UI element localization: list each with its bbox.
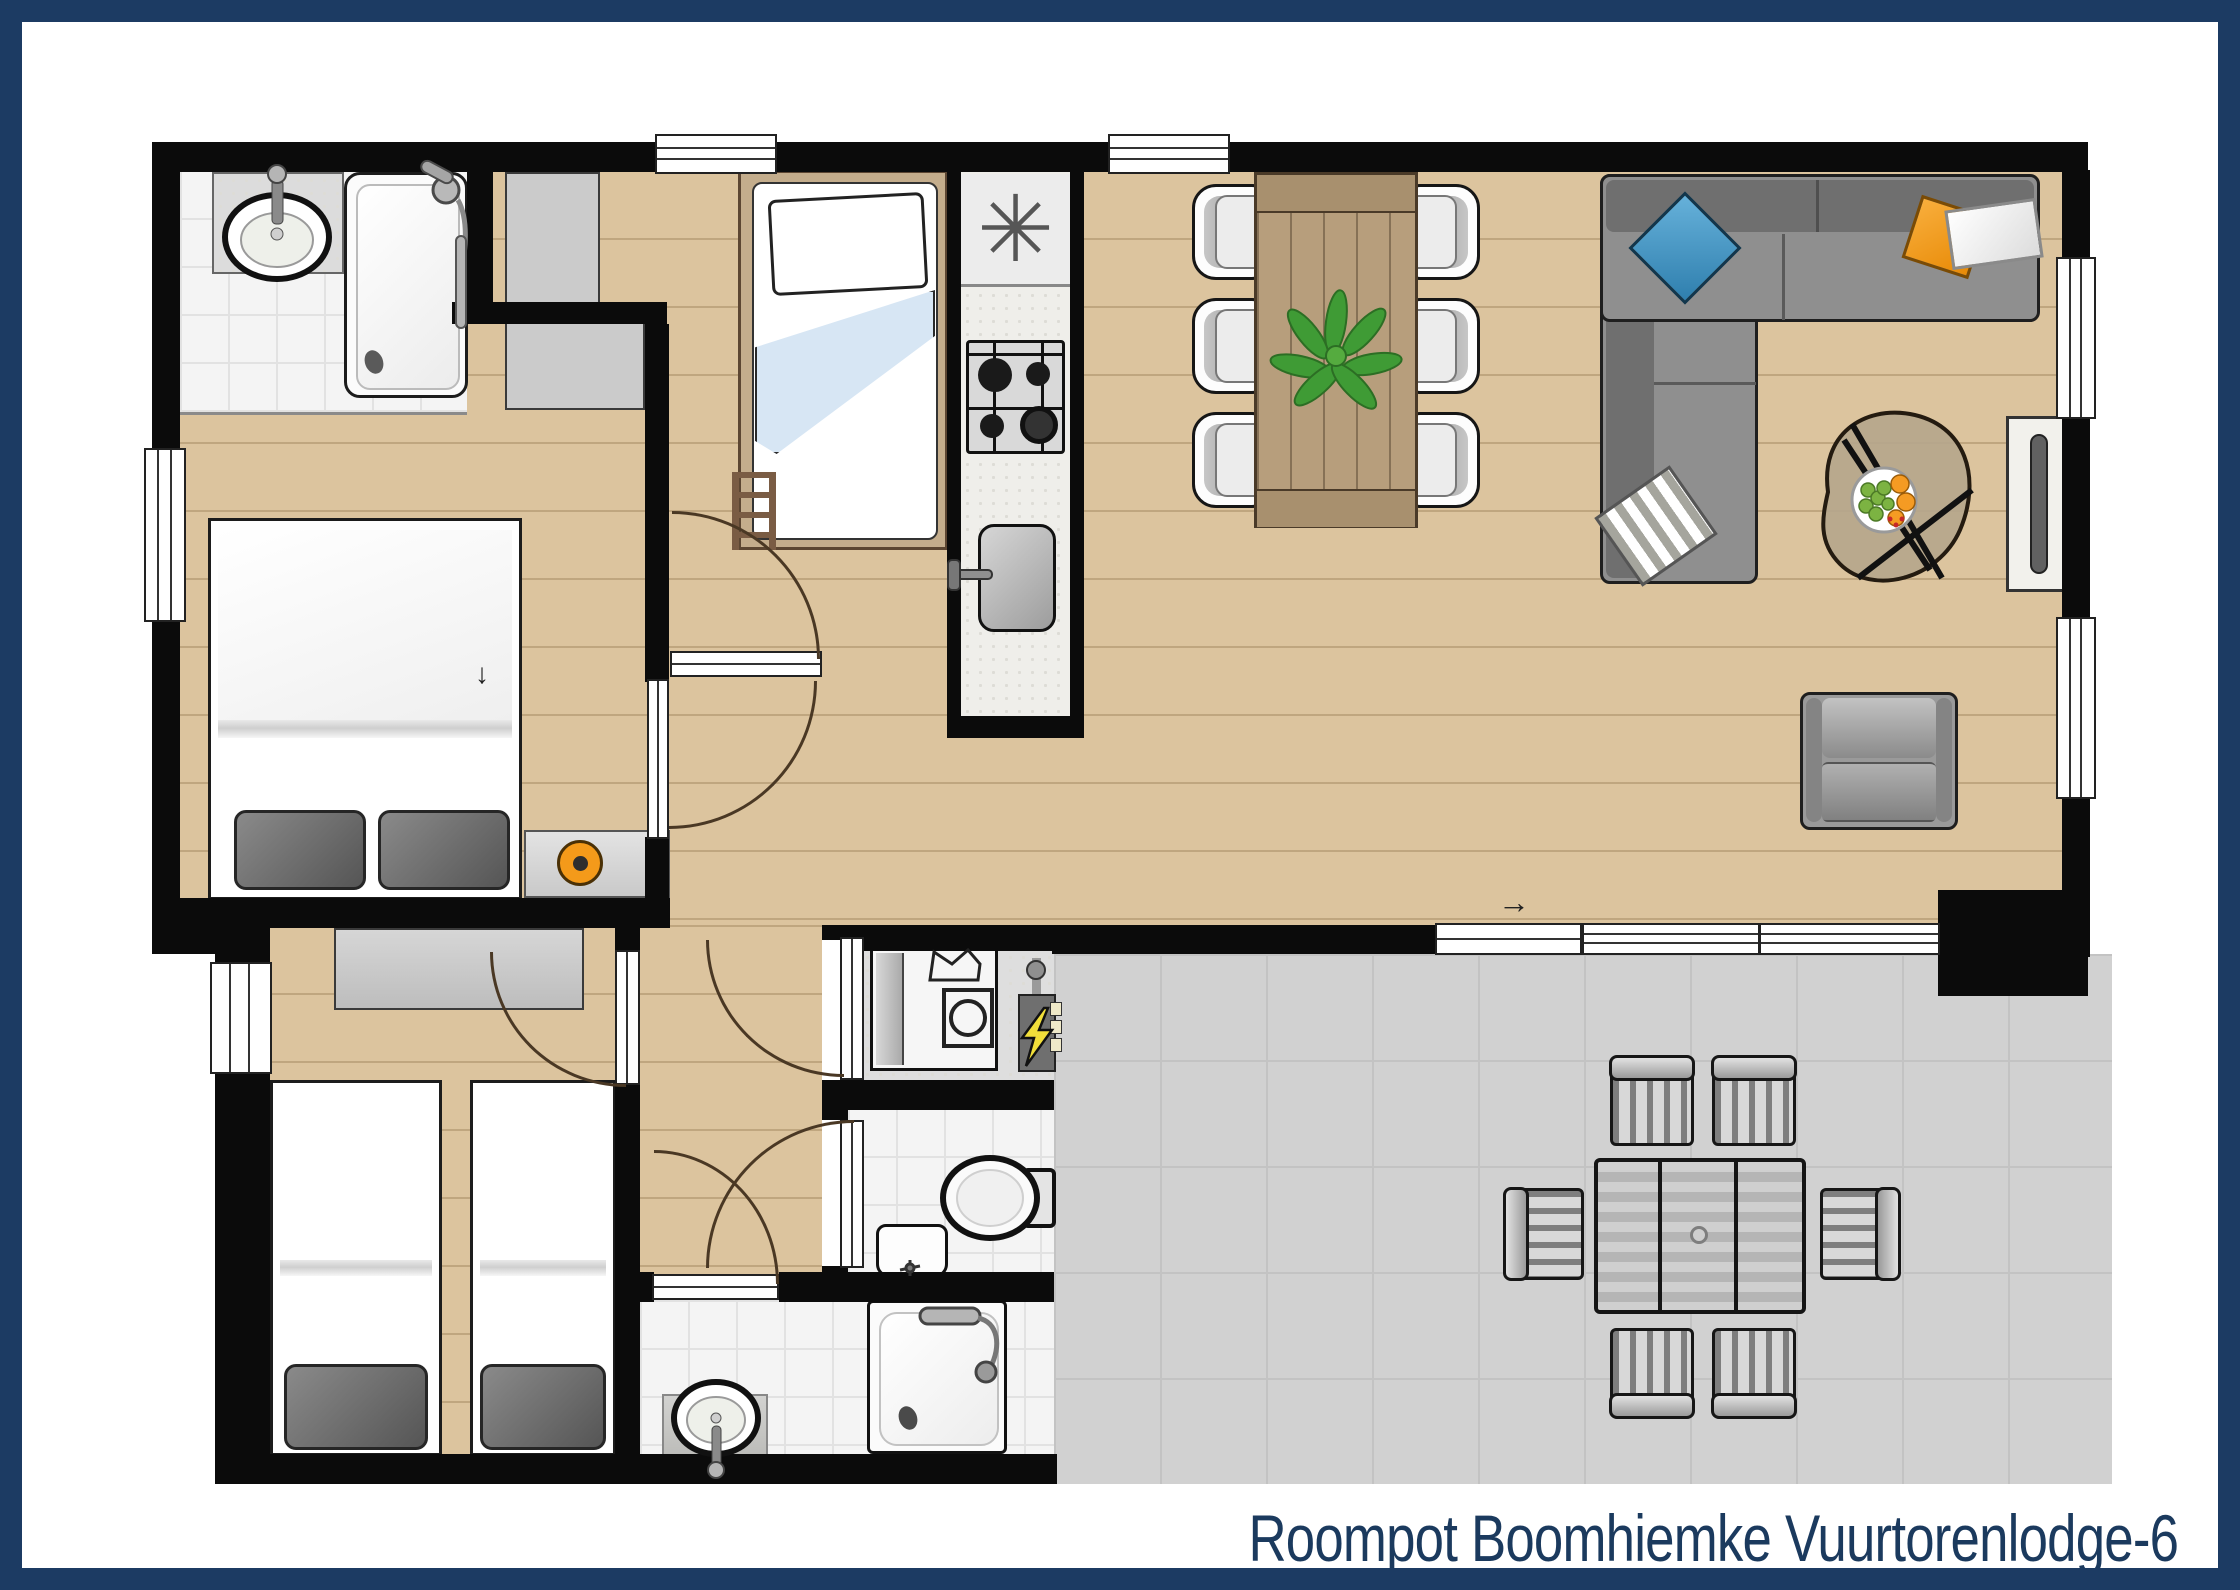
wall: [452, 302, 667, 324]
wall: [152, 898, 670, 928]
terrace-chair-bottom: [1610, 1328, 1694, 1416]
sliding-door: [1582, 923, 1940, 955]
electrical-pipe: [1032, 958, 1041, 994]
wall: [645, 324, 669, 682]
electrical-knob: [1050, 1002, 1062, 1016]
terrace-table-hole: [1690, 1226, 1708, 1244]
terrace-table-divider: [1734, 1160, 1738, 1310]
wardrobe-lower: [505, 320, 645, 410]
twin-bed-left-pillow: [284, 1364, 428, 1450]
terrace-chair-left: [1506, 1188, 1584, 1280]
wall: [1938, 890, 2088, 996]
twin-bed-right-pillow: [480, 1364, 606, 1450]
window: [210, 962, 272, 1074]
wall: [779, 1272, 1054, 1302]
window: [655, 134, 777, 174]
dining-table-end-board: [1257, 489, 1415, 527]
wall: [840, 1080, 1054, 1110]
kitchen-sink: [978, 524, 1056, 632]
entrance-arrow-icon: →: [1474, 884, 1554, 921]
nightstand-ring-hole: [573, 856, 588, 871]
floor-plan-page: ✳: [0, 0, 2240, 1590]
double-bed-pillow: [234, 810, 366, 890]
burner-1: [978, 358, 1012, 392]
burner-3: [980, 414, 1004, 438]
bathtub-inner: [356, 184, 460, 390]
armchair-armrest: [1806, 698, 1822, 822]
pillow-white: [1944, 198, 2043, 270]
bathroom2-vanity: [662, 1394, 768, 1456]
hall-arrow-icon: ↓: [462, 658, 502, 690]
dining-table-end-board: [1257, 175, 1415, 213]
wall: [467, 142, 493, 324]
armchair-seat: [1822, 762, 1936, 822]
electrical-knob: [1050, 1020, 1062, 1034]
wall: [615, 1084, 640, 1484]
wardrobe-upper: [505, 172, 600, 305]
bathroom1-vanity: [212, 172, 344, 274]
sofa-seat-line: [1654, 382, 1756, 385]
shower-tray-inner: [879, 1312, 999, 1446]
terrace-chair-bottom: [1712, 1328, 1796, 1416]
burner-2: [1026, 362, 1050, 386]
wall: [615, 928, 640, 950]
window: [2056, 257, 2096, 419]
ventilation-asterisk-icon: ✳: [961, 172, 1070, 284]
wall: [947, 170, 961, 722]
double-bed-pillow: [378, 810, 510, 890]
toilet-hand-basin: [876, 1224, 948, 1278]
wall: [947, 716, 1084, 738]
terrace-chair-top: [1610, 1058, 1694, 1146]
electrical-knob: [1050, 1038, 1062, 1052]
dining-table: [1254, 172, 1418, 528]
wall: [1070, 170, 1084, 722]
entrance-door: [1435, 923, 1582, 955]
single-bed-2-pillow: [768, 192, 929, 296]
window: [1108, 134, 1230, 174]
double-bed-duvet: [218, 530, 512, 720]
plan-title: Roompot Boomhiemke Vuurtorenlodge-6: [1248, 1500, 2178, 1576]
window: [144, 448, 186, 622]
terrace-chair-right: [1820, 1188, 1898, 1280]
armchair-back: [1822, 698, 1936, 758]
burner-4: [1020, 406, 1058, 444]
twin-bed-right-fold: [480, 1260, 606, 1276]
window: [2056, 617, 2096, 799]
tv-screen: [2030, 434, 2048, 574]
sliding-door-mullion: [1758, 925, 1761, 953]
terrace-chair-top: [1712, 1058, 1796, 1146]
sofa-seat-line: [1782, 234, 1785, 320]
armchair-armrest: [1936, 698, 1952, 822]
door-bedroom1: [647, 679, 669, 839]
twin-bed-left-fold: [280, 1260, 432, 1276]
wall: [1052, 925, 1437, 954]
double-bed-fold: [218, 720, 512, 738]
washing-machine-door-band: [876, 953, 904, 1065]
wall: [840, 925, 1054, 951]
terrace-table-divider: [1658, 1160, 1662, 1310]
